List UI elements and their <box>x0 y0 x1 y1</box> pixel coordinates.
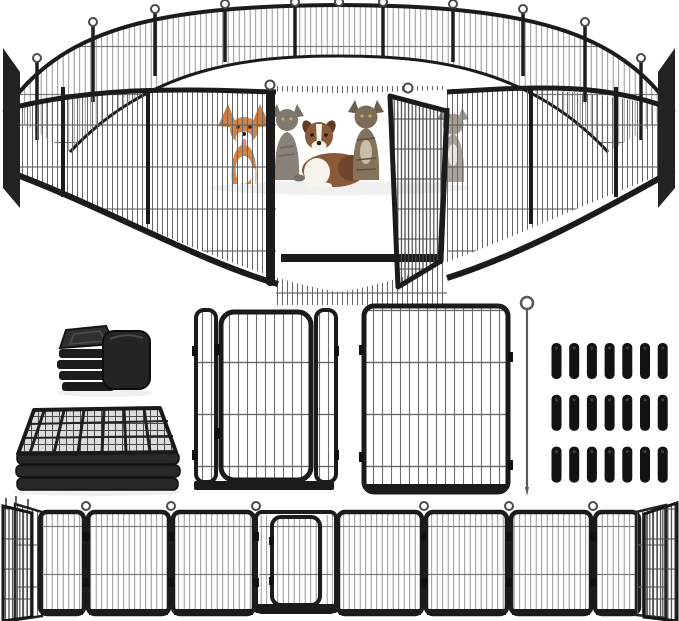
tabby-head <box>355 106 378 129</box>
pen-connector-ring <box>449 0 457 8</box>
ground-stake-highlight <box>590 346 593 349</box>
plain-panel-item <box>359 306 513 492</box>
plain-panel-bottom-bar <box>366 484 506 492</box>
ground-stake-highlight <box>555 346 558 349</box>
row-connector-knob <box>168 578 174 587</box>
ground-stake-highlight <box>661 450 664 453</box>
row-fence-panel <box>173 512 254 614</box>
tabby-cat <box>348 100 384 180</box>
gray-cat-head <box>276 109 298 131</box>
row-panel-bottom-bar <box>427 609 506 615</box>
pen-connector-ring <box>379 0 387 6</box>
gate-panel-item <box>192 310 339 490</box>
gray-cat-tail <box>293 175 305 182</box>
row-connector-ring <box>252 502 260 510</box>
row-connector-ring <box>505 502 513 510</box>
gate-panel-lug <box>334 450 339 460</box>
open-gate-door <box>390 96 447 287</box>
ground-stake-highlight <box>590 398 593 401</box>
pen-connector-ring <box>151 5 159 13</box>
gate-left-post-ring <box>266 81 275 90</box>
gate-left-post <box>266 92 275 286</box>
gate-panel-lug <box>192 450 197 460</box>
row-left-angled-panel <box>3 506 32 621</box>
aussie-eye <box>324 133 328 137</box>
row-right-angled-panel <box>644 503 677 621</box>
gray-cat-eye <box>282 118 285 121</box>
pen-connector-ring <box>581 18 589 26</box>
aussie-paw <box>320 183 332 190</box>
gate-panel-hinge <box>214 428 220 439</box>
row-connector-ring <box>420 502 428 510</box>
row-panel-bottom-bar <box>41 609 83 615</box>
pen-connector-ring <box>221 0 229 8</box>
row-fence-panel <box>338 512 422 614</box>
pen-connector-ring <box>637 54 645 62</box>
gray-cat-eye <box>290 118 293 121</box>
ground-stake-highlight <box>573 346 576 349</box>
row-gate-left-strip <box>259 515 270 609</box>
row-connector-knob <box>83 532 89 541</box>
ground-stake-highlight <box>643 398 646 401</box>
ground-stake-highlight <box>661 398 664 401</box>
plain-panel-lug <box>359 452 364 462</box>
pen-connector-ring <box>89 18 97 26</box>
row-connector-knob <box>590 532 596 541</box>
end-caps <box>57 326 153 397</box>
row-fence-panel <box>88 512 169 614</box>
smooth-cap-body <box>103 331 150 389</box>
ground-stake-highlight <box>643 450 646 453</box>
row-connector-ring <box>82 502 90 510</box>
ground-stake-highlight <box>590 450 593 453</box>
row-straight-panels <box>40 512 639 615</box>
tabby-eye <box>369 115 372 118</box>
tabby-chest <box>360 140 372 164</box>
ground-rod <box>521 297 533 496</box>
ground-rod-tip <box>525 487 529 496</box>
row-gate-hinge <box>269 577 274 585</box>
row-panel-bottom-bar <box>89 609 168 615</box>
ground-stake-highlight <box>608 450 611 453</box>
ground-stake-highlight <box>608 346 611 349</box>
plain-panel-lug <box>359 345 364 355</box>
ground-stake-highlight <box>661 346 664 349</box>
row-gate-hinge <box>269 537 274 545</box>
gate-panel-hinge <box>214 344 220 355</box>
row-panel-bottom-bar <box>174 609 253 615</box>
row-panel-bottom-bar <box>596 609 638 615</box>
row-connector-knob <box>506 578 512 587</box>
row-connector-knob <box>168 532 174 541</box>
plain-panel-frame <box>364 306 508 492</box>
smooth-end-cap <box>103 331 150 389</box>
aussie-paw <box>305 181 317 188</box>
row-connector-ring <box>167 502 175 510</box>
pen-connector-ring <box>291 0 299 6</box>
row-panel-bottom-bar <box>339 609 421 615</box>
ground-stake-highlight <box>626 450 629 453</box>
pen-connector-ring <box>335 0 343 6</box>
gate-panel-bottom-bar <box>194 481 334 490</box>
pen-front-wall-mesh <box>4 86 674 305</box>
assembled-playpen <box>3 0 675 305</box>
row-fence-panel <box>426 512 507 614</box>
row-panel-bottom-bar <box>512 609 590 615</box>
ground-stake-highlight <box>573 450 576 453</box>
ground-stake-highlight <box>626 398 629 401</box>
row-connector-knob <box>253 578 259 587</box>
stacked-panel-edge <box>17 478 178 490</box>
gate-door-ring <box>404 84 413 93</box>
row-gate-bottom-bar <box>255 604 337 613</box>
pen-right-edge-panel <box>658 48 675 208</box>
tabby-eye <box>361 115 364 118</box>
row-connector-knob <box>590 578 596 587</box>
pen-connector-ring <box>519 5 527 13</box>
gate-panel-right-strip <box>316 310 336 482</box>
stacked-panel-edge <box>16 465 180 477</box>
ground-stake-highlight <box>555 450 558 453</box>
row-gate-right-strip <box>322 515 333 609</box>
gate-panel-door <box>221 312 311 480</box>
ground-stakes <box>552 343 668 483</box>
row-connector-knob <box>506 532 512 541</box>
folded-panel-stack <box>13 408 183 496</box>
ground-stake-highlight <box>626 346 629 349</box>
panel-row <box>3 496 677 621</box>
ground-stake-highlight <box>555 398 558 401</box>
gate-panel-lug <box>334 346 339 356</box>
row-connector-knob <box>253 532 259 541</box>
aussie-eye <box>310 133 314 137</box>
plain-panel-lug <box>508 352 513 362</box>
playpen-illustration <box>0 0 679 621</box>
gray-cat-body <box>275 132 299 180</box>
row-connector-ring <box>589 502 597 510</box>
gate-panel-left-strip <box>196 310 216 482</box>
row-connector-knob <box>421 578 427 587</box>
product-image <box>0 0 679 621</box>
row-fence-panel <box>40 512 84 614</box>
ground-stake-highlight <box>643 346 646 349</box>
row-connector-knob <box>83 578 89 587</box>
ground-stake-highlight <box>608 398 611 401</box>
pen-left-edge-panel <box>3 48 20 208</box>
ground-stake-highlight <box>573 398 576 401</box>
row-fence-panel <box>511 512 591 614</box>
row-fence-panel <box>595 512 639 614</box>
ground-rod-loop <box>521 297 533 309</box>
gate-panel-lug <box>192 346 197 356</box>
row-gate-panel <box>255 512 337 613</box>
row-gate-door <box>272 517 320 605</box>
aussie-nose <box>317 141 322 146</box>
pen-connector-ring <box>33 54 41 62</box>
row-connector-knob <box>421 532 427 541</box>
plain-panel-lug <box>508 460 513 470</box>
